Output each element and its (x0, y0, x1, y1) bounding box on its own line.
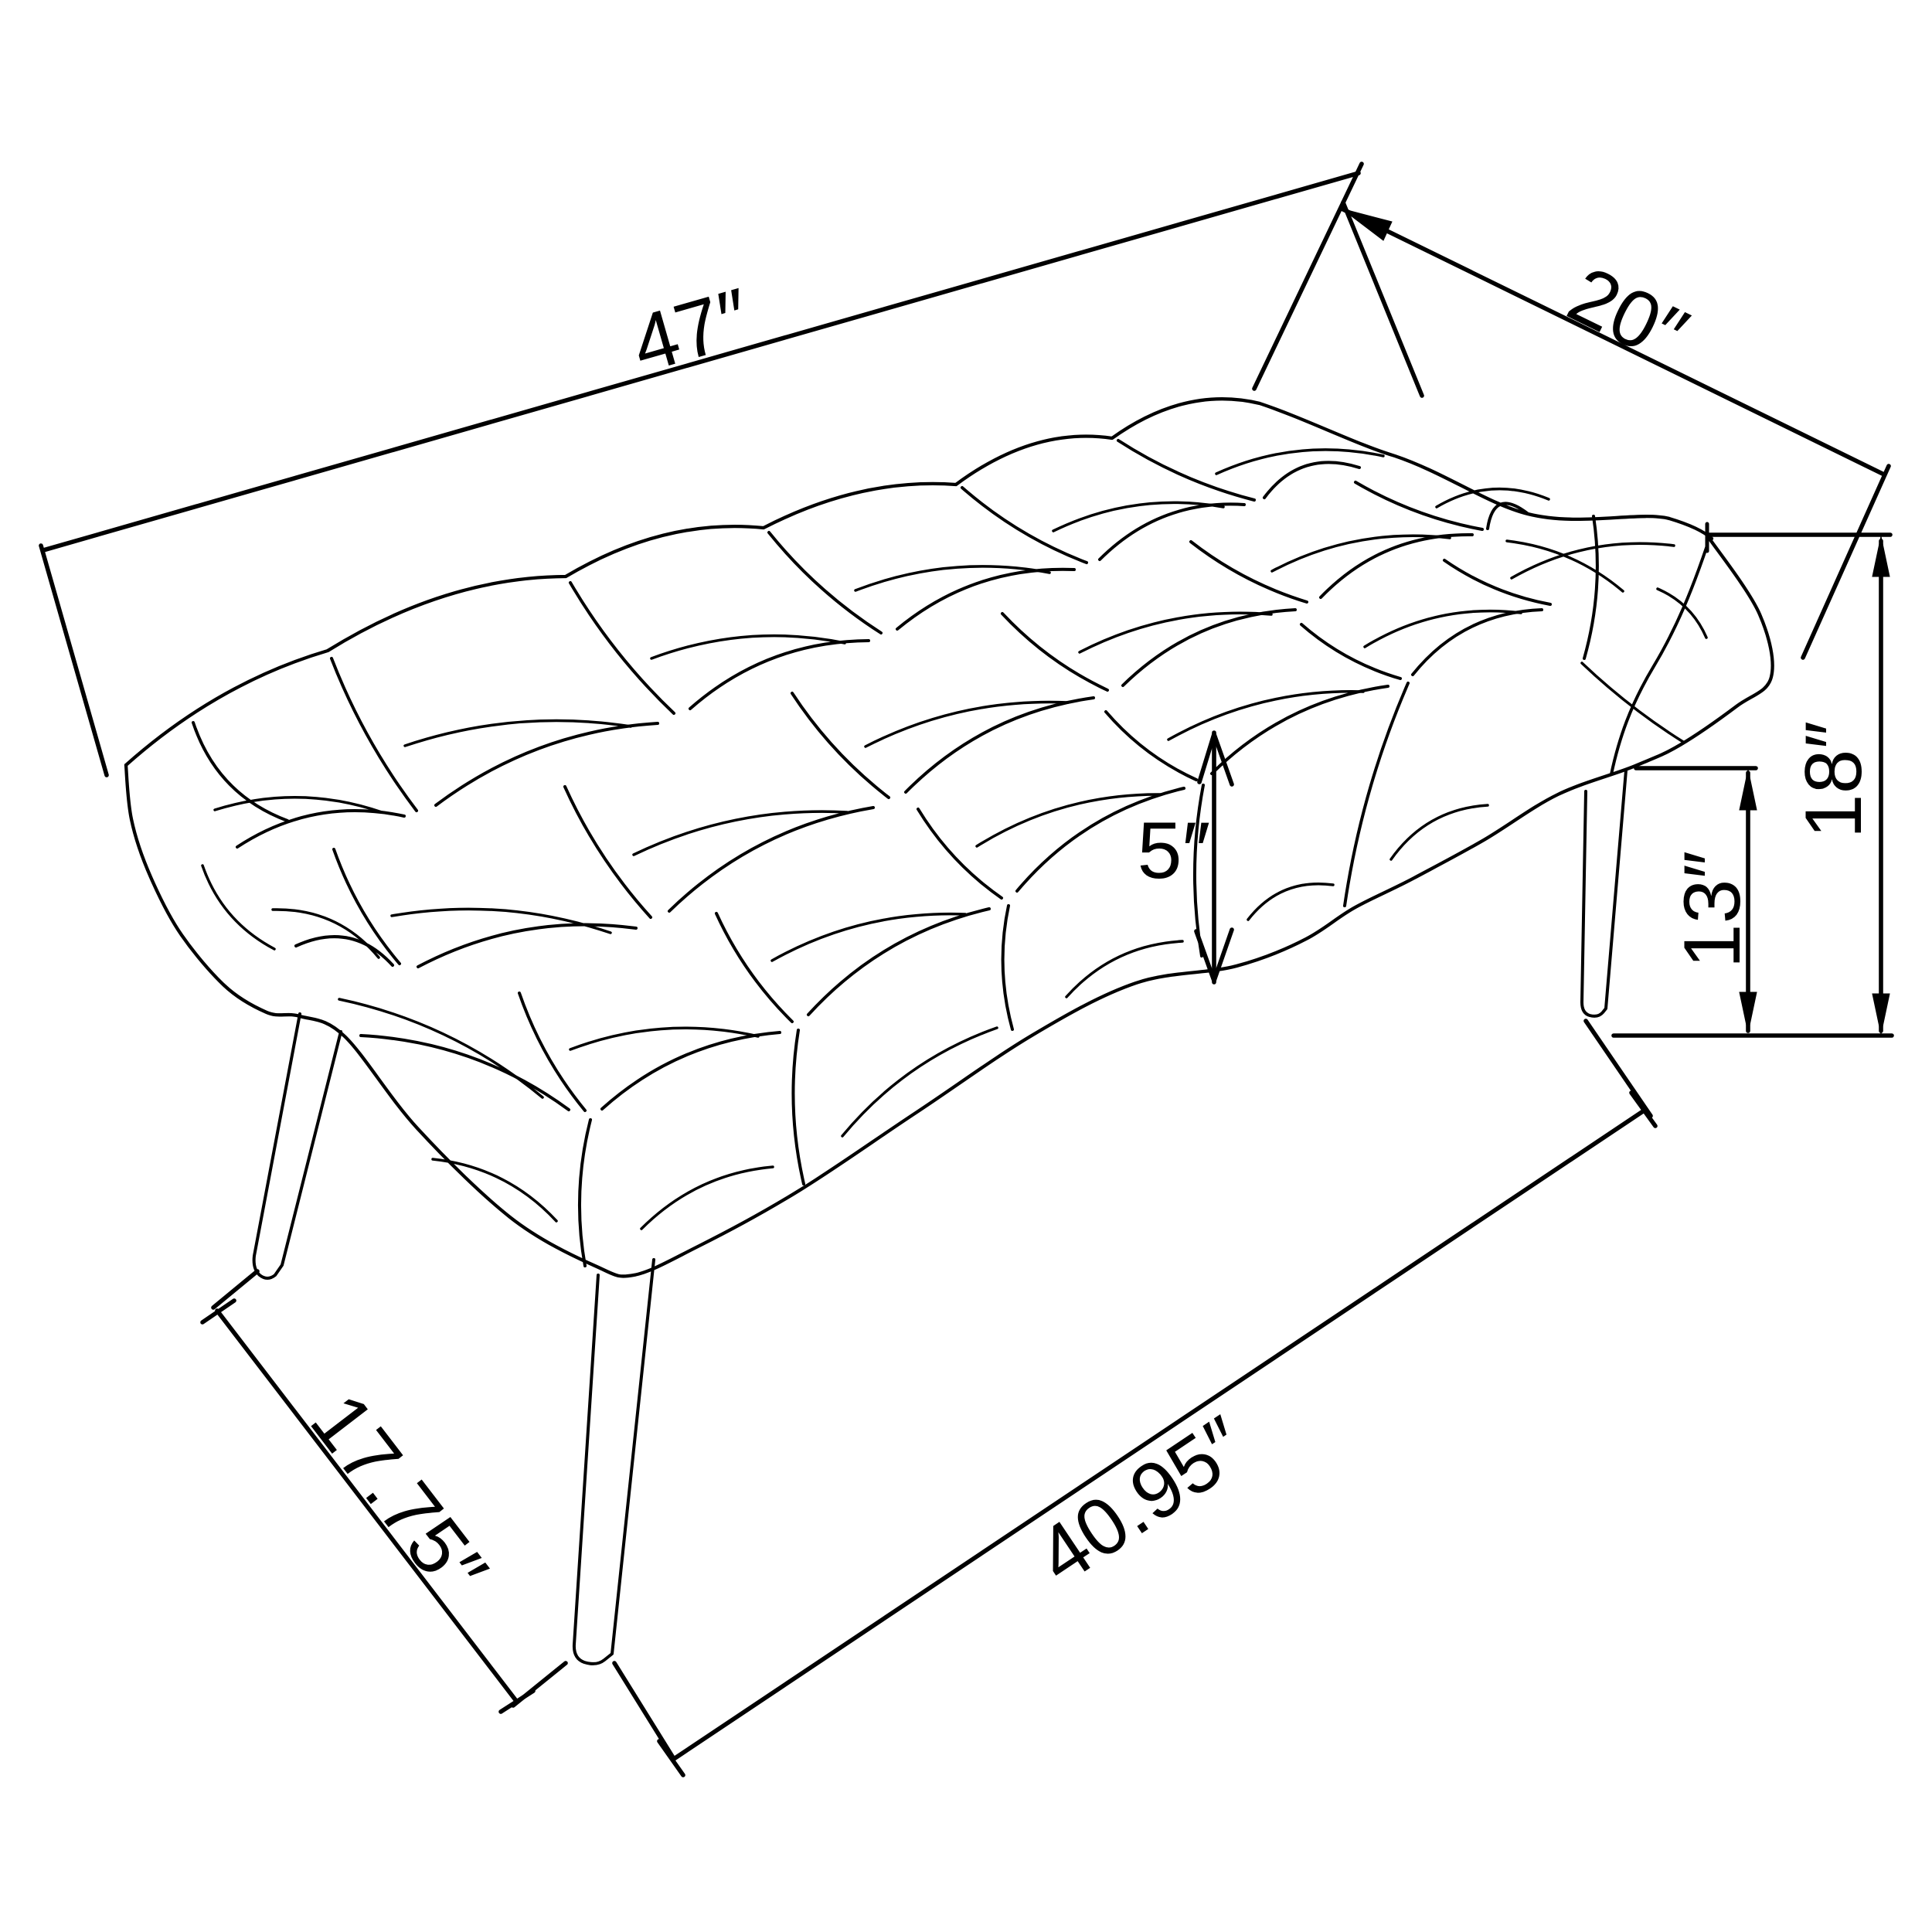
svg-text:13″: 13″ (1668, 851, 1757, 969)
svg-text:5″: 5″ (1138, 806, 1211, 896)
svg-text:18″: 18″ (1789, 721, 1879, 839)
